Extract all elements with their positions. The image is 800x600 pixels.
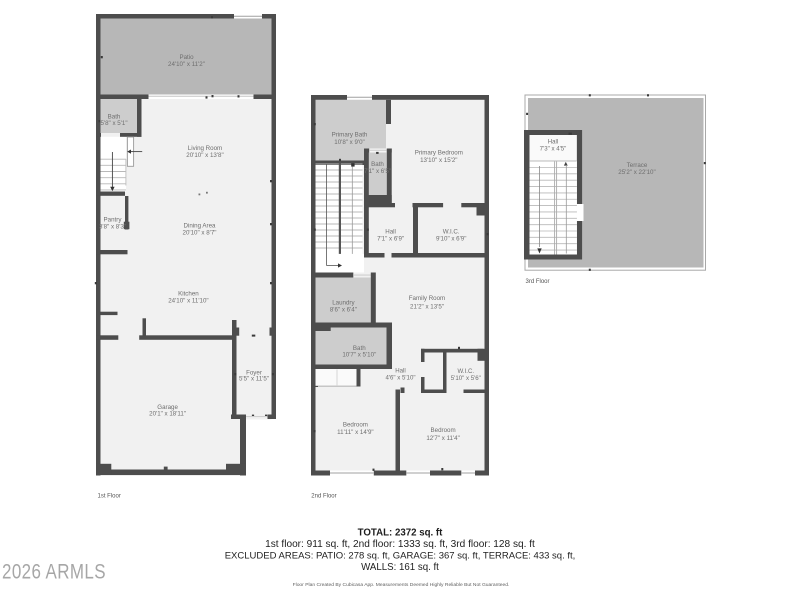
svg-text:7'3" x 4'5": 7'3" x 4'5" <box>540 145 567 152</box>
svg-text:7'1" x 6'9": 7'1" x 6'9" <box>377 235 404 242</box>
svg-text:24'10" x 11'2": 24'10" x 11'2" <box>168 61 205 68</box>
svg-text:1st floor: 911 sq. ft, 2nd flo: 1st floor: 911 sq. ft, 2nd floor: 1333 s… <box>265 539 535 550</box>
svg-text:5'5" x 11'5": 5'5" x 11'5" <box>239 376 269 383</box>
svg-text:Laundry: Laundry <box>332 300 355 307</box>
svg-text:13'10" x 15'2": 13'10" x 15'2" <box>420 157 457 164</box>
svg-text:4'6" x 5'10": 4'6" x 5'10" <box>385 374 415 381</box>
svg-text:Living Room: Living Room <box>188 145 222 152</box>
svg-text:Patio: Patio <box>179 54 194 61</box>
svg-text:11'11" x 14'9": 11'11" x 14'9" <box>337 429 373 436</box>
svg-text:Terrace: Terrace <box>627 162 648 169</box>
svg-text:1st Floor: 1st Floor <box>98 493 121 499</box>
svg-text:Hall: Hall <box>395 367 406 374</box>
svg-text:5'10" x 5'6": 5'10" x 5'6" <box>451 375 481 382</box>
svg-text:7'1" x 6'5": 7'1" x 6'5" <box>364 168 391 175</box>
svg-text:Primary Bath: Primary Bath <box>332 132 368 139</box>
svg-text:Bedroom: Bedroom <box>343 422 368 429</box>
svg-text:21'2" x 13'5": 21'2" x 13'5" <box>410 304 444 311</box>
svg-text:Bedroom: Bedroom <box>431 427 456 434</box>
svg-text:8'6" x 6'4": 8'6" x 6'4" <box>330 307 357 314</box>
svg-text:12'7" x 11'4": 12'7" x 11'4" <box>426 435 459 442</box>
svg-text:Dining Area: Dining Area <box>184 223 217 230</box>
svg-text:Family Room: Family Room <box>409 295 445 302</box>
svg-text:EXCLUDED AREAS: PATIO: 278 sq.: EXCLUDED AREAS: PATIO: 278 sq. ft, GARAG… <box>225 550 576 561</box>
svg-text:TOTAL: 2372 sq. ft: TOTAL: 2372 sq. ft <box>358 527 443 538</box>
svg-text:Hall: Hall <box>385 228 396 235</box>
svg-text:Kitchen: Kitchen <box>178 291 199 298</box>
svg-text:9'10" x 6'9": 9'10" x 6'9" <box>436 235 467 242</box>
svg-text:5'8" x 5'1": 5'8" x 5'1" <box>100 120 127 127</box>
svg-text:2026 ARMLS: 2026 ARMLS <box>2 560 106 584</box>
svg-text:20'10" x 8'7": 20'10" x 8'7" <box>183 230 217 237</box>
svg-text:3rd Floor: 3rd Floor <box>526 279 550 285</box>
svg-text:Primary Bedroom: Primary Bedroom <box>415 150 463 157</box>
svg-text:W.I.C.: W.I.C. <box>443 228 460 235</box>
svg-text:2nd Floor: 2nd Floor <box>311 493 336 499</box>
svg-text:10'7" x 5'10": 10'7" x 5'10" <box>342 352 376 359</box>
svg-text:10'8" x 9'0": 10'8" x 9'0" <box>334 139 365 146</box>
svg-text:24'10" x 11'10": 24'10" x 11'10" <box>168 298 208 305</box>
svg-text:25'2" x 22'10": 25'2" x 22'10" <box>618 169 655 176</box>
svg-text:Floor Plan Created By Cubicasa: Floor Plan Created By Cubicasa App. Meas… <box>293 582 510 588</box>
svg-text:20'1" x 18'11": 20'1" x 18'11" <box>149 411 186 418</box>
svg-text:WALLS: 161 sq. ft: WALLS: 161 sq. ft <box>361 562 439 573</box>
svg-text:20'10" x 13'8": 20'10" x 13'8" <box>186 152 223 159</box>
svg-text:3'8" x 8'3": 3'8" x 8'3" <box>99 223 126 230</box>
